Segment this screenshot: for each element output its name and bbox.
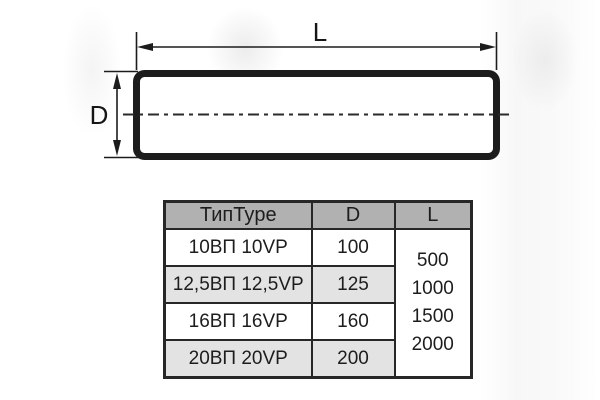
- l-value-line: 500: [400, 247, 467, 275]
- arrowhead-left-icon: [137, 43, 153, 51]
- header-cell-l: L: [395, 202, 472, 230]
- diameter-label: D: [90, 100, 109, 130]
- d-cell: 125: [312, 266, 395, 303]
- type-cell: 10ВП 10VP: [165, 229, 312, 266]
- d-cell: 100: [312, 229, 395, 266]
- arrowhead-top-icon: [113, 73, 121, 89]
- type-cell: 12,5ВП 12,5VP: [165, 266, 312, 303]
- type-cell: 20ВП 20VP: [165, 340, 312, 378]
- header-cell-d: D: [312, 202, 395, 230]
- length-label: L: [313, 17, 327, 47]
- d-cell: 160: [312, 303, 395, 340]
- l-values-cell: 500 1000 1500 2000: [395, 229, 472, 378]
- arrowhead-bottom-icon: [113, 140, 121, 156]
- screenshot-root: L D ТипType D L 10ВП 10VP 10: [0, 0, 600, 400]
- duct-drawing: L D: [0, 0, 600, 195]
- d-cell: 200: [312, 340, 395, 378]
- table-header-row: ТипType D L: [165, 202, 472, 230]
- table-row: 10ВП 10VP 100 500 1000 1500 2000: [165, 229, 472, 266]
- arrowhead-right-icon: [480, 43, 496, 51]
- l-value-line: 2000: [400, 331, 467, 359]
- header-cell-type: ТипType: [165, 202, 312, 230]
- l-value-line: 1000: [400, 275, 467, 303]
- l-value-line: 1500: [400, 303, 467, 331]
- type-cell: 16ВП 16VP: [165, 303, 312, 340]
- spec-table: ТипType D L 10ВП 10VP 100 500 1000 1500 …: [163, 200, 473, 379]
